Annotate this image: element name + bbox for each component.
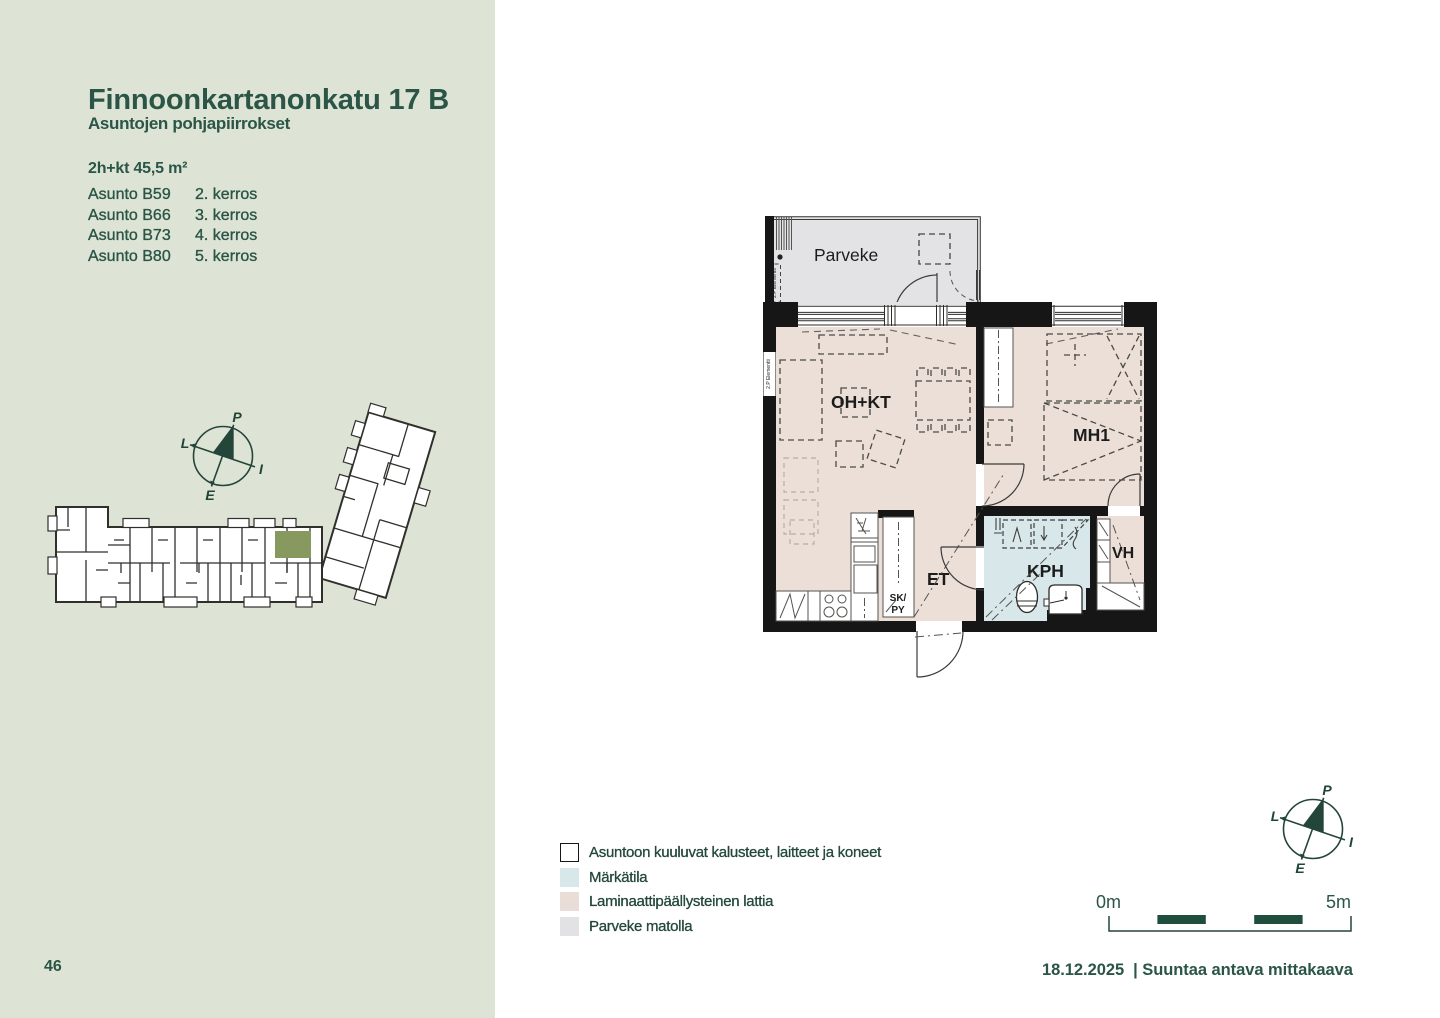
svg-text:I: I [259, 461, 264, 477]
svg-text:0m: 0m [1096, 892, 1121, 912]
svg-text:L: L [1271, 808, 1280, 824]
svg-text:OH+KT: OH+KT [831, 392, 891, 412]
svg-text:SK/: SK/ [890, 593, 907, 604]
svg-text:I: I [1349, 834, 1354, 850]
svg-text:E: E [1295, 860, 1305, 876]
svg-text:Parveke: Parveke [814, 245, 878, 265]
svg-text:5m: 5m [1326, 892, 1351, 912]
svg-text:MH1: MH1 [1073, 425, 1110, 445]
svg-text:L: L [181, 435, 190, 451]
svg-text:2.P Elementti: 2.P Elementti [766, 359, 772, 389]
svg-text:PY: PY [891, 605, 905, 616]
svg-text:E: E [205, 487, 215, 503]
svg-text:P: P [1322, 782, 1332, 798]
svg-text:P: P [232, 409, 242, 425]
svg-text:VH: VH [1112, 545, 1134, 562]
